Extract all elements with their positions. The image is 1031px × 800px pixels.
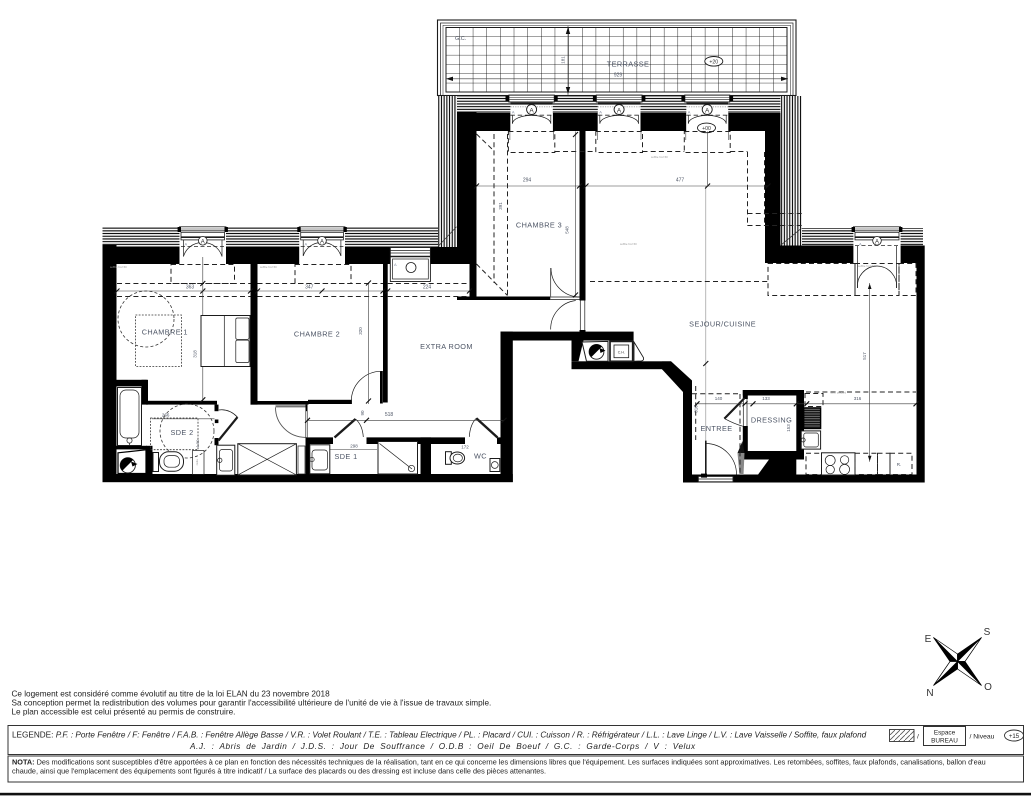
svg-text:NOTA: Des modifications sont: NOTA: Des modifications sont susceptible… [12, 758, 986, 767]
svg-text:TERRASSE: TERRASSE [607, 60, 650, 69]
svg-text:BUREAU: BUREAU [931, 738, 958, 745]
svg-text:A: A [394, 262, 397, 267]
svg-text:soffite ht.2.50: soffite ht.2.50 [260, 265, 277, 269]
svg-text:181: 181 [561, 56, 566, 64]
svg-text:R.: R. [897, 462, 902, 467]
svg-text:CHAMBRE 1: CHAMBRE 1 [142, 328, 188, 337]
svg-text:266: 266 [162, 413, 170, 418]
svg-text:310: 310 [694, 405, 699, 413]
svg-text:477: 477 [676, 178, 685, 184]
svg-text:A: A [201, 239, 205, 245]
svg-text:SDE 1: SDE 1 [334, 452, 357, 461]
svg-text:S: S [984, 627, 991, 638]
svg-text:294: 294 [523, 178, 532, 184]
svg-text:Le plan accessible est celui p: Le plan accessible est celui présenté au… [12, 708, 236, 717]
svg-text:soffite ht.2.50: soffite ht.2.50 [858, 264, 875, 268]
svg-text:WC: WC [474, 452, 487, 461]
svg-text:E: E [925, 634, 932, 645]
svg-text:ENTREE: ENTREE [701, 424, 733, 433]
svg-text:320: 320 [358, 327, 363, 335]
svg-text:LEGENDE: P.F. : Porte Fenêtre: LEGENDE: P.F. : Porte Fenêtre / F: Fenêt… [12, 731, 867, 740]
svg-text:N: N [926, 688, 933, 699]
svg-text:A: A [512, 110, 515, 115]
svg-text:/ Niveau: / Niveau [970, 734, 995, 741]
svg-text:298: 298 [350, 444, 358, 449]
svg-text:A: A [705, 107, 710, 114]
svg-text:517: 517 [862, 352, 867, 360]
svg-text:224: 224 [423, 285, 432, 291]
svg-text:haut. placard: haut. placard [830, 391, 847, 395]
svg-text:A: A [617, 107, 622, 114]
svg-text:A: A [305, 242, 308, 247]
svg-text:soffite ht.2.50: soffite ht.2.50 [110, 265, 127, 269]
svg-text:radia.: radia. [195, 458, 199, 465]
svg-text:391: 391 [498, 202, 503, 210]
svg-text:1.50: 1.50 [195, 439, 200, 448]
svg-text:CHAMBRE 3: CHAMBRE 3 [516, 221, 562, 230]
svg-text:A: A [529, 107, 534, 114]
svg-text:929: 929 [614, 72, 623, 78]
svg-text:363: 363 [186, 285, 195, 291]
svg-text:G.C.: G.C. [455, 36, 467, 42]
svg-text:/: / [917, 734, 919, 741]
svg-text:A: A [688, 110, 691, 115]
svg-text:EXTRA ROOM: EXTRA ROOM [420, 342, 473, 351]
svg-text:Ce logement est considéré comm: Ce logement est considéré comme évolutif… [12, 690, 331, 699]
svg-text:90: 90 [360, 410, 365, 416]
svg-text:153: 153 [786, 424, 791, 432]
svg-text:SDE 2: SDE 2 [170, 428, 193, 437]
svg-text:A: A [875, 239, 879, 245]
svg-text:518: 518 [385, 412, 394, 418]
svg-text:Espace: Espace [934, 730, 956, 737]
svg-text:347: 347 [305, 285, 314, 291]
svg-text:140: 140 [715, 396, 723, 401]
svg-text:soffite ht.2.50: soffite ht.2.50 [620, 242, 637, 246]
svg-text:A: A [859, 242, 862, 247]
svg-text:Sa conception permet la redist: Sa conception permet la redistribution d… [12, 699, 492, 708]
svg-text:A: A [185, 242, 188, 247]
svg-text:+15: +15 [1009, 734, 1020, 740]
svg-text:316: 316 [854, 396, 862, 401]
svg-text:chaude, ainsi que l'emplacemen: chaude, ainsi que l'emplacement des équi… [12, 767, 546, 776]
svg-text:133: 133 [762, 396, 770, 401]
svg-text:A.J. : Abris de Jardin / J.D.S: A.J. : Abris de Jardin / J.D.S. : Jour D… [189, 742, 696, 751]
svg-text:A: A [599, 110, 602, 115]
svg-text:172: 172 [461, 445, 469, 450]
svg-text:DRESSING: DRESSING [751, 416, 792, 425]
svg-text:CHAMBRE 2: CHAMBRE 2 [294, 330, 340, 339]
svg-text:soffite ht.2.50: soffite ht.2.50 [651, 155, 668, 159]
svg-text:A: A [320, 239, 324, 245]
svg-text:SEJOUR/CUISINE: SEJOUR/CUISINE [689, 320, 756, 329]
svg-text:C.H.: C.H. [618, 350, 625, 354]
svg-text:548: 548 [565, 226, 570, 234]
svg-text:O: O [984, 682, 992, 693]
svg-text:318: 318 [193, 350, 198, 358]
svg-text:+20: +20 [709, 59, 718, 65]
